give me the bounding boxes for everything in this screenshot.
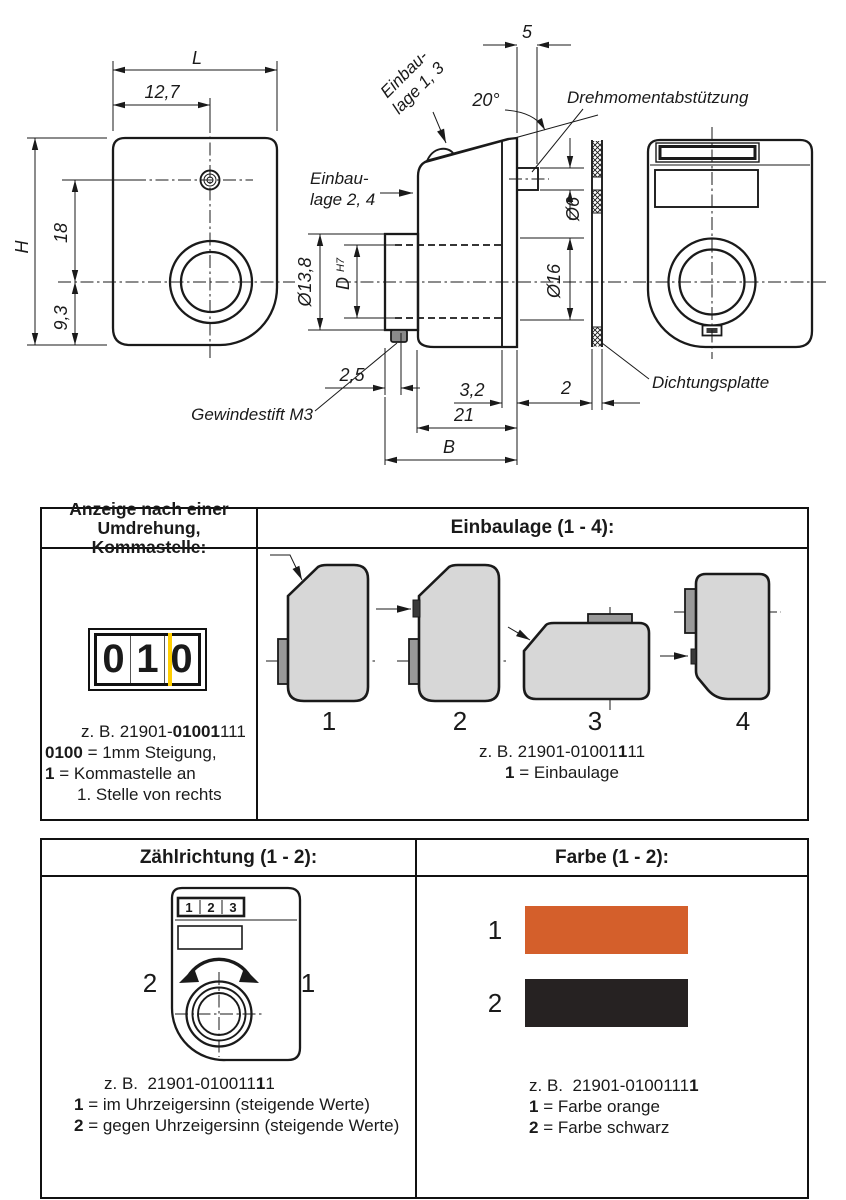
dim-d16: Ø16 [544, 263, 564, 299]
legend-line: 0100 = 1mm Steigung, [45, 742, 253, 763]
mounting-position-4 [660, 574, 781, 699]
legend-line: 1 = Einbaulage [322, 762, 802, 783]
dim-12-7: 12,7 [144, 82, 180, 102]
dim-20deg: 20° [471, 90, 499, 110]
seal-plate: 2 Dichtungsplatte Drehmomentabstützung [532, 88, 769, 410]
legend-line: 1 = Farbe orange [529, 1096, 799, 1117]
einbaulage-caption: z. B. 21901-01001111 1 = Einbaulage [322, 741, 802, 783]
example-code: z. B. 21901-01001111 [81, 721, 253, 742]
dim-D: D [333, 277, 353, 290]
legend-line: 1 = Kommastelle an [45, 763, 253, 784]
swatch-black [525, 979, 688, 1027]
swatch-orange [525, 906, 688, 954]
label-window-icon [178, 926, 242, 949]
display-window-icon: 1 2 3 [178, 898, 244, 916]
dim-L: L [192, 48, 202, 68]
color-swatches-figure: 1 2 [417, 877, 802, 1047]
farbe-caption: z. B. 21901-01001111 1 = Farbe orange 2 … [529, 1075, 799, 1138]
install-pos-24-label: Einbau- [310, 169, 369, 188]
example-code: z. B. 21901-01001111 [104, 1073, 412, 1094]
anzeige-cell: 0 1 0 z. B. 21901-01001111 0100 = 1mm St… [42, 549, 258, 819]
setscrew-side-icon [391, 330, 407, 342]
anzeige-caption: z. B. 21901-01001111 0100 = 1mm Steigung… [45, 721, 253, 805]
front-view: L 12,7 H 18 9,3 [12, 48, 295, 360]
dim-H: H [12, 240, 32, 254]
comma-marker [168, 633, 172, 686]
direction-number-2: 2 [143, 968, 157, 998]
farbe-header: Farbe (1 - 2): [417, 840, 807, 877]
dim-3-2: 3,2 [459, 380, 484, 400]
options-table-bottom: Zählrichtung (1 - 2): Farbe (1 - 2): 1 2… [40, 838, 809, 1199]
torque-support-label: Drehmomentabstützung [567, 88, 749, 107]
color-number-1: 1 [488, 915, 502, 945]
zaehlrichtung-cell: 1 2 3 2 1 z. B. 21 [42, 877, 417, 1197]
label-window-icon [655, 170, 758, 207]
technical-drawing: L 12,7 H 18 9,3 [0, 0, 846, 500]
example-code: z. B. 21901-01001111 [529, 1075, 799, 1096]
dim-2-5: 2,5 [338, 365, 365, 385]
counter-digit: 0 [97, 636, 131, 683]
direction-number-1: 1 [301, 968, 315, 998]
einbaulage-header: Einbaulage (1 - 4): [258, 509, 807, 549]
rear-view [633, 127, 827, 359]
options-table-top: Anzeige nach einerUmdrehung, Kommastelle… [40, 507, 809, 821]
legend-line: 1 = im Uhrzeigersinn (steigende Werte) [74, 1094, 412, 1115]
farbe-cell: 1 2 z. B. 21901-01001111 1 = Farbe orang… [417, 877, 807, 1197]
dim-d6: Ø6 [563, 196, 583, 222]
setscrew-label: Gewindestift M3 [191, 405, 313, 424]
counting-direction-figure: 1 2 3 2 1 [42, 877, 414, 1069]
dim-5: 5 [522, 22, 533, 42]
dim-D-tolerance: H7 [335, 257, 347, 272]
dim-18: 18 [51, 223, 71, 243]
position-number-4: 4 [736, 706, 750, 736]
install-pos-24-label2: lage 2, 4 [310, 190, 375, 209]
einbaulage-cell: 1 2 3 4 z. B. 21901-01001111 1 = Einbaul… [258, 549, 807, 819]
dim-21: 21 [453, 405, 474, 425]
side-view: 20° 5 Ø6 Ø16 Ø13,8 [191, 22, 630, 465]
anzeige-header: Anzeige nach einerUmdrehung, Kommastelle… [42, 509, 258, 549]
dim-B: B [443, 437, 455, 457]
display-digit: 1 [185, 900, 192, 915]
position-number-3: 3 [588, 706, 602, 736]
dim-2: 2 [560, 378, 571, 398]
catalog-page: L 12,7 H 18 9,3 [0, 0, 846, 1200]
position-number-2: 2 [453, 706, 467, 736]
dim-9-3: 9,3 [51, 305, 71, 330]
zaehlrichtung-caption: z. B. 21901-01001111 1 = im Uhrzeigersin… [42, 1073, 412, 1136]
counter-display: 0 1 0 [88, 628, 207, 691]
seal-plate-label: Dichtungsplatte [652, 373, 769, 392]
mounting-positions-figure: 1 2 3 4 [258, 549, 804, 737]
mounting-position-2 [376, 565, 507, 701]
example-code: z. B. 21901-01001111 [322, 741, 802, 762]
display-window-icon [656, 143, 759, 162]
dim-d13-8: Ø13,8 [295, 257, 315, 307]
display-digit: 3 [229, 900, 236, 915]
mounting-position-3 [508, 607, 649, 711]
legend-line: 2 = Farbe schwarz [529, 1117, 799, 1138]
counter-digit: 1 [131, 636, 165, 683]
display-digit: 2 [207, 900, 214, 915]
color-number-2: 2 [488, 988, 502, 1018]
mounting-position-1 [266, 555, 376, 701]
legend-line: 1. Stelle von rechts [77, 784, 253, 805]
position-number-1: 1 [322, 706, 336, 736]
zaehlrichtung-header: Zählrichtung (1 - 2): [42, 840, 417, 877]
legend-line: 2 = gegen Uhrzeigersinn (steigende Werte… [74, 1115, 412, 1136]
